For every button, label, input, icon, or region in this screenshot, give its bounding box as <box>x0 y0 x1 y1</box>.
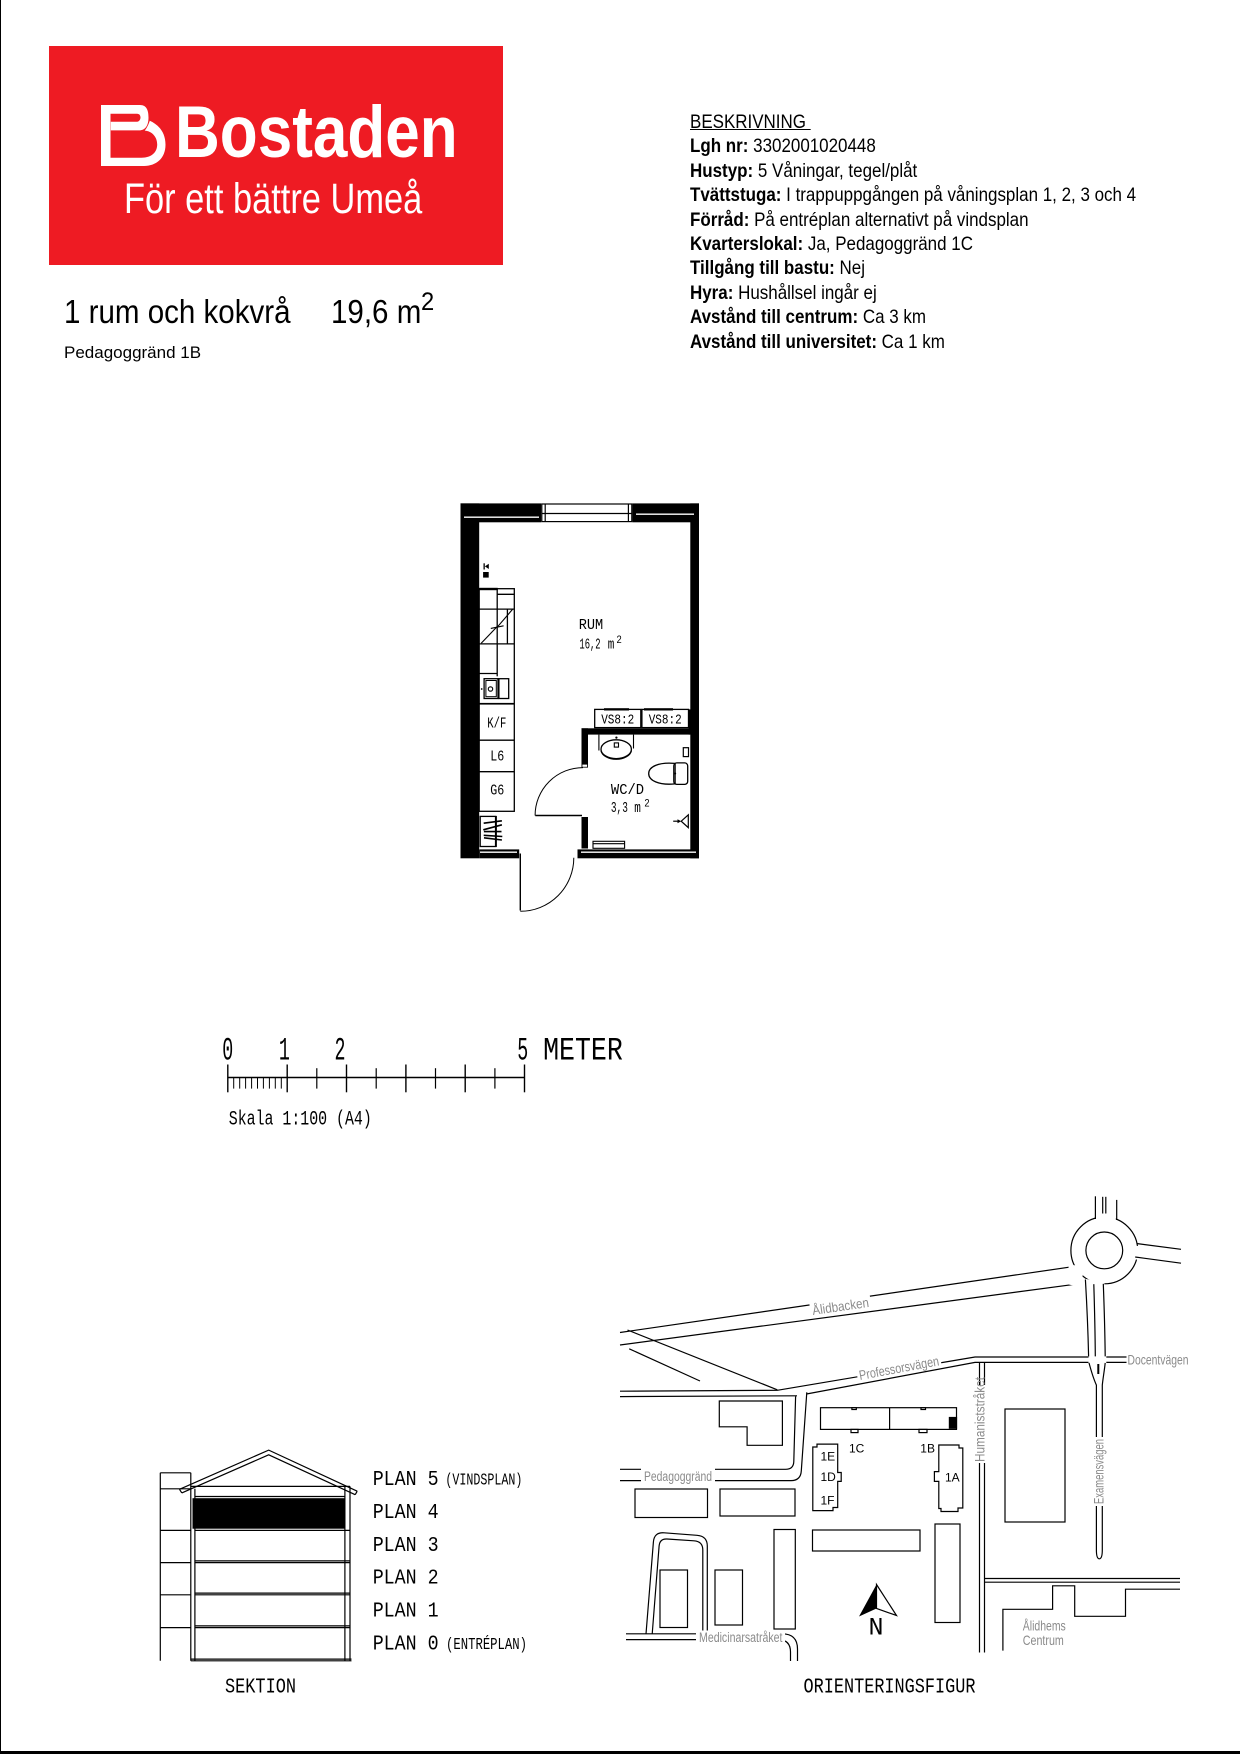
svg-text:m: m <box>634 800 641 817</box>
svg-text:PLAN 1: PLAN 1 <box>373 1601 439 1624</box>
svg-text:1E: 1E <box>821 1449 836 1463</box>
svg-text:(VINDSPLAN): (VINDSPLAN) <box>445 1471 522 1490</box>
svg-text:K/F: K/F <box>487 716 506 732</box>
svg-text:1: 1 <box>279 1033 290 1070</box>
svg-text:1F: 1F <box>821 1494 835 1508</box>
svg-text:VS8:2: VS8:2 <box>649 712 682 728</box>
svg-text:Examensvägen: Examensvägen <box>1092 1439 1107 1504</box>
svg-text:PLAN 0: PLAN 0 <box>373 1633 439 1656</box>
svg-text:2: 2 <box>335 1033 346 1070</box>
svg-text:2: 2 <box>644 798 650 810</box>
svg-text:16,2: 16,2 <box>579 637 600 654</box>
svg-text:PLAN 4: PLAN 4 <box>373 1502 439 1525</box>
svg-text:ORIENTERINGSFIGUR: ORIENTERINGSFIGUR <box>804 1676 976 1699</box>
svg-text:VS8:2: VS8:2 <box>601 712 634 728</box>
svg-text:Medicinarsatråket: Medicinarsatråket <box>699 1630 783 1645</box>
svg-text:PLAN 5: PLAN 5 <box>373 1469 439 1492</box>
svg-text:Humaniststråket: Humaniststråket <box>973 1377 988 1462</box>
svg-text:G6: G6 <box>490 783 504 799</box>
svg-text:Professorsvägen: Professorsvägen <box>858 1353 940 1383</box>
svg-text:Ålidbacken: Ålidbacken <box>811 1295 870 1318</box>
svg-text:PLAN 2: PLAN 2 <box>373 1568 439 1591</box>
svg-text:5: 5 <box>517 1033 528 1070</box>
svg-text:Centrum: Centrum <box>1023 1632 1064 1648</box>
svg-text:1B: 1B <box>920 1441 935 1455</box>
svg-text:N: N <box>869 1614 884 1643</box>
svg-text:L6: L6 <box>490 750 504 766</box>
svg-text:Pedagoggränd: Pedagoggränd <box>644 1469 712 1484</box>
svg-text:Skala 1:100 (A4): Skala 1:100 (A4) <box>229 1108 372 1131</box>
svg-text:Docentvägen: Docentvägen <box>1128 1352 1189 1368</box>
svg-text:0: 0 <box>222 1033 233 1070</box>
svg-text:METER: METER <box>543 1033 623 1070</box>
svg-text:1D: 1D <box>821 1470 837 1484</box>
svg-text:WC/D: WC/D <box>611 782 644 799</box>
svg-text:RUM: RUM <box>579 617 604 634</box>
svg-text:1C: 1C <box>849 1441 865 1455</box>
svg-text:1A: 1A <box>945 1470 960 1484</box>
svg-text:m: m <box>608 637 615 654</box>
svg-text:(ENTRÉPLAN): (ENTRÉPLAN) <box>446 1635 527 1654</box>
svg-text:3,3: 3,3 <box>611 800 628 817</box>
svg-text:2: 2 <box>616 635 622 647</box>
svg-text:PLAN 3: PLAN 3 <box>373 1535 439 1558</box>
svg-text:SEKTION: SEKTION <box>225 1676 296 1699</box>
